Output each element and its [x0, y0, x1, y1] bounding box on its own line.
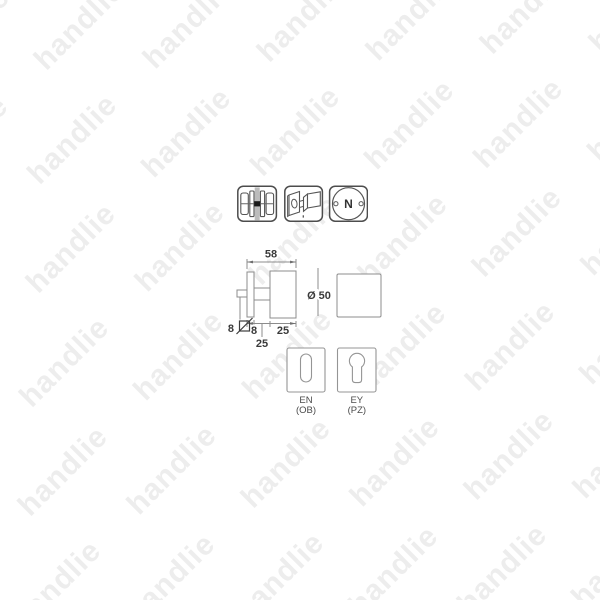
catalog-page: handlie handlie handlie handlie handlie … [0, 0, 600, 600]
rose-n-marking-icon: N [330, 186, 368, 221]
dim-spindle-size: 8 [228, 323, 234, 335]
dim-rose-thickness: 8 [251, 325, 257, 337]
knob-stem-shape [254, 288, 270, 300]
dim-arrow [290, 322, 296, 325]
ob-keyhole-slot [301, 354, 312, 382]
knob-front-view [337, 274, 381, 317]
dim-knob-depth: 25 [277, 325, 289, 337]
knob-head-shape [270, 271, 296, 318]
dim-diameter: Ø 50 [307, 290, 331, 302]
knob-rose-mounting-icon [285, 186, 323, 221]
technical-drawing: 58 8 25 25 8 Ø 50 [220, 240, 400, 355]
dim-arrow [247, 261, 253, 264]
rose-marking-letter: N [344, 197, 353, 211]
escutcheon-options: EN (OB) EY (PZ) [280, 345, 390, 420]
dim-58-lines [247, 259, 296, 269]
rose-shape [247, 272, 254, 317]
knob-pair-section-icon [238, 186, 277, 221]
dim-overall-depth: 58 [265, 249, 277, 261]
spindle-shape [237, 290, 247, 297]
feature-icon-strip: N [236, 184, 368, 224]
dim-arrow [290, 261, 296, 264]
dim-projection: 25 [256, 338, 268, 350]
escutcheon-pz-suffix: (PZ) [348, 405, 366, 416]
escutcheon-ob-suffix: (OB) [296, 405, 316, 416]
